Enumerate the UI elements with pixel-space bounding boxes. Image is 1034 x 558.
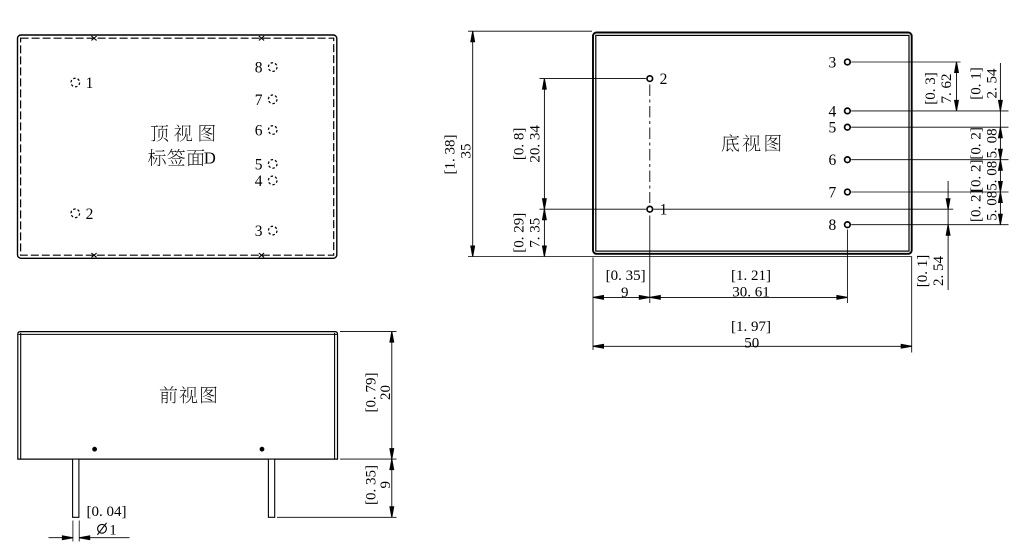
svg-text:8: 8 xyxy=(255,60,263,77)
svg-text:2. 54: 2. 54 xyxy=(931,256,947,287)
svg-text:7. 35: 7. 35 xyxy=(527,218,543,248)
svg-text:[1. 21]: [1. 21] xyxy=(731,268,771,284)
svg-text:20. 34: 20. 34 xyxy=(527,125,543,163)
svg-text:9: 9 xyxy=(621,285,629,301)
svg-text:[0. 04]: [0. 04] xyxy=(87,504,127,520)
svg-text:[0. 1]: [0. 1] xyxy=(969,67,985,100)
svg-text:[0. 35]: [0. 35] xyxy=(606,268,646,284)
svg-text:[0. 1]: [0. 1] xyxy=(915,255,931,288)
svg-text:[0. 29]: [0. 29] xyxy=(512,213,528,253)
svg-text:5. 08: 5. 08 xyxy=(984,128,1000,158)
svg-text:1: 1 xyxy=(109,522,117,538)
svg-text:1: 1 xyxy=(660,202,668,219)
svg-text:[0. 35]: [0. 35] xyxy=(363,465,379,505)
svg-text:[0. 79]: [0. 79] xyxy=(363,373,379,413)
svg-text:[1. 38]: [1. 38] xyxy=(442,135,458,175)
svg-text:7: 7 xyxy=(829,185,837,202)
svg-text:3: 3 xyxy=(829,55,837,72)
svg-text:5: 5 xyxy=(829,120,837,137)
svg-text:7: 7 xyxy=(255,92,263,109)
svg-text:3: 3 xyxy=(255,223,263,240)
svg-text:4: 4 xyxy=(829,103,837,120)
svg-text:5: 5 xyxy=(255,156,263,173)
svg-text:50: 50 xyxy=(744,336,759,352)
svg-text:6: 6 xyxy=(255,123,263,140)
svg-text:8: 8 xyxy=(829,217,837,234)
svg-text:D: D xyxy=(204,149,216,168)
svg-text:5. 08: 5. 08 xyxy=(984,191,1000,221)
svg-text:[0. 2]: [0. 2] xyxy=(969,190,985,223)
svg-text:7. 62: 7. 62 xyxy=(939,74,955,104)
svg-text:[0. 3]: [0. 3] xyxy=(923,72,939,105)
svg-text:1: 1 xyxy=(86,75,94,92)
svg-text:5. 08: 5. 08 xyxy=(984,161,1000,191)
svg-text:2: 2 xyxy=(86,206,94,223)
svg-text:9: 9 xyxy=(378,481,394,489)
svg-text:6: 6 xyxy=(829,152,837,169)
svg-text:[0. 8]: [0. 8] xyxy=(512,128,528,161)
svg-text:30. 61: 30. 61 xyxy=(732,285,770,301)
svg-text:4: 4 xyxy=(255,173,263,190)
svg-text:[0. 2]: [0. 2] xyxy=(969,127,985,160)
svg-text:2: 2 xyxy=(660,71,668,88)
svg-text:[1. 97]: [1. 97] xyxy=(731,319,771,335)
svg-text:35: 35 xyxy=(458,144,474,159)
svg-text:[0. 2]: [0. 2] xyxy=(969,160,985,193)
svg-text:20: 20 xyxy=(378,385,394,400)
svg-text:2. 54: 2. 54 xyxy=(984,68,1000,99)
